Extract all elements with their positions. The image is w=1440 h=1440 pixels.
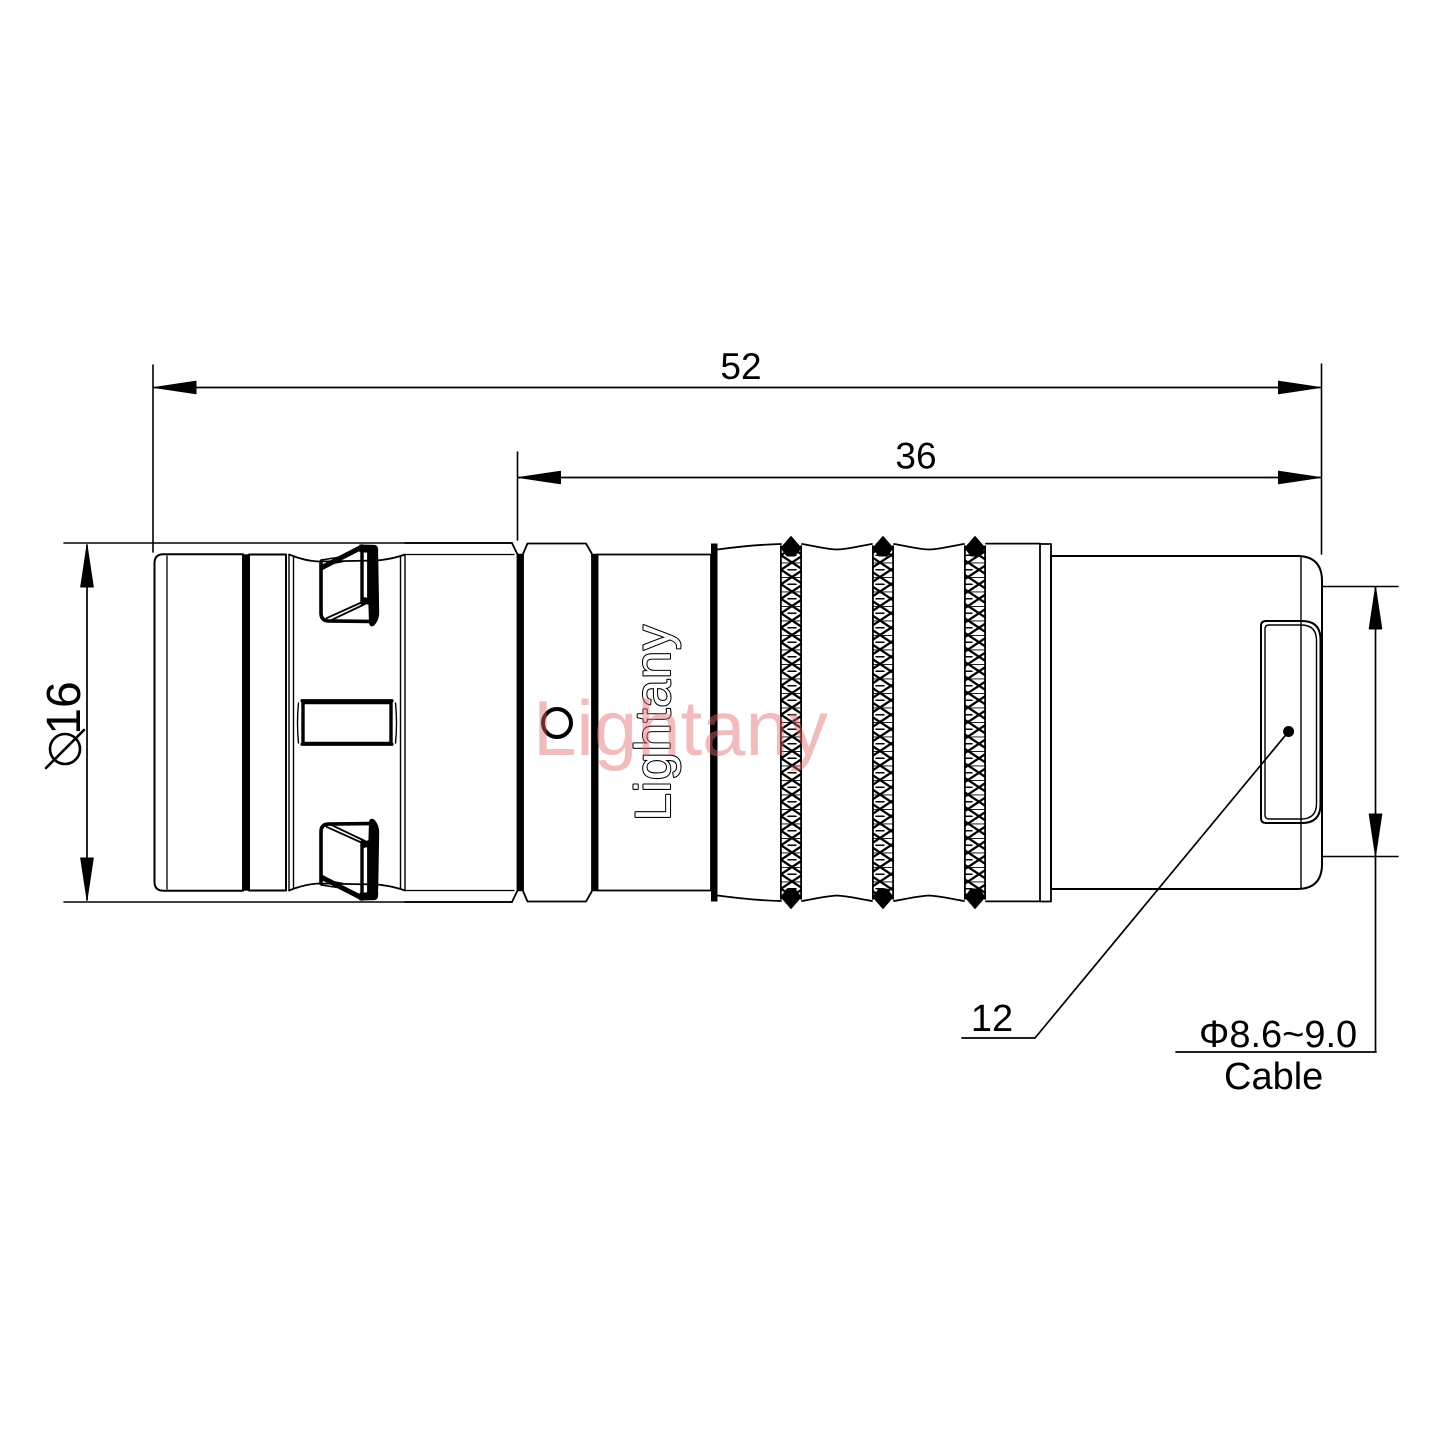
svg-text:Cable: Cable [1224, 1056, 1323, 1098]
svg-text:16: 16 [38, 681, 91, 734]
svg-text:Φ8.6~9.0: Φ8.6~9.0 [1199, 1014, 1357, 1056]
svg-text:Lightany: Lightany [533, 684, 828, 772]
svg-text:12: 12 [971, 998, 1013, 1040]
svg-text:52: 52 [720, 346, 761, 387]
svg-text:36: 36 [895, 436, 936, 477]
